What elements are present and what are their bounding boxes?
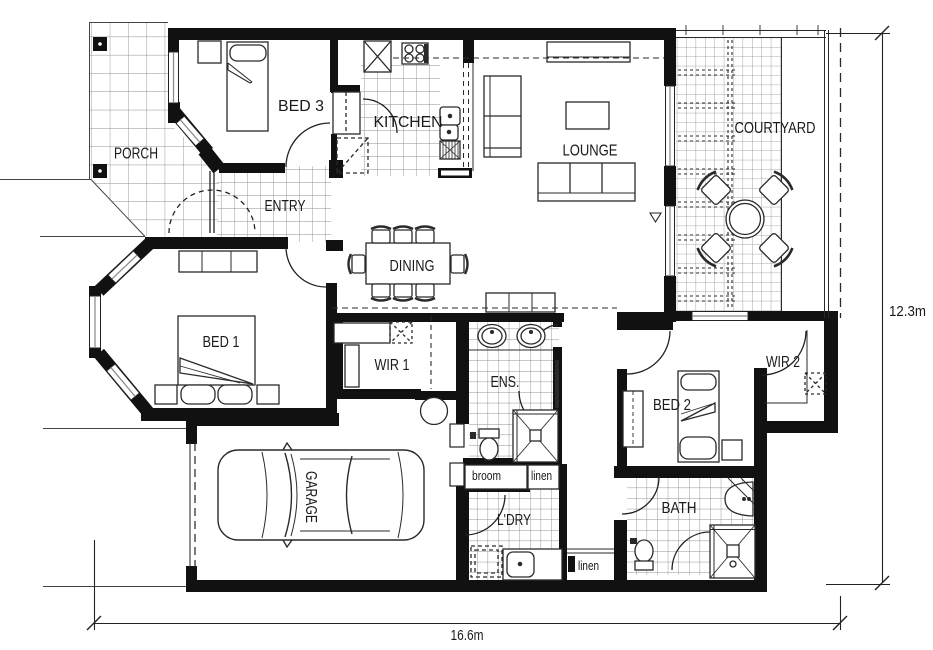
svg-text:BATH: BATH: [662, 500, 697, 517]
svg-text:KITCHEN: KITCHEN: [374, 114, 443, 131]
svg-text:linen: linen: [578, 559, 599, 573]
svg-text:ENTRY: ENTRY: [265, 198, 306, 215]
svg-text:GARAGE: GARAGE: [302, 471, 319, 523]
svg-text:DINING: DINING: [390, 258, 435, 275]
svg-text:PORCH: PORCH: [114, 146, 158, 163]
svg-text:ENS.: ENS.: [491, 374, 520, 391]
svg-text:linen: linen: [531, 469, 552, 483]
svg-text:BED 1: BED 1: [203, 334, 240, 351]
svg-text:16.6m: 16.6m: [451, 628, 484, 644]
svg-text:broom: broom: [472, 469, 501, 483]
svg-text:COURTYARD: COURTYARD: [735, 120, 816, 137]
svg-text:WIR 2: WIR 2: [766, 354, 800, 371]
svg-text:L'DRY: L'DRY: [497, 512, 531, 529]
svg-text:WIR 1: WIR 1: [375, 357, 410, 374]
svg-text:BED 2: BED 2: [653, 397, 691, 414]
svg-text:BED 3: BED 3: [278, 98, 324, 115]
svg-text:LOUNGE: LOUNGE: [563, 143, 618, 160]
svg-text:12.3m: 12.3m: [889, 304, 926, 320]
